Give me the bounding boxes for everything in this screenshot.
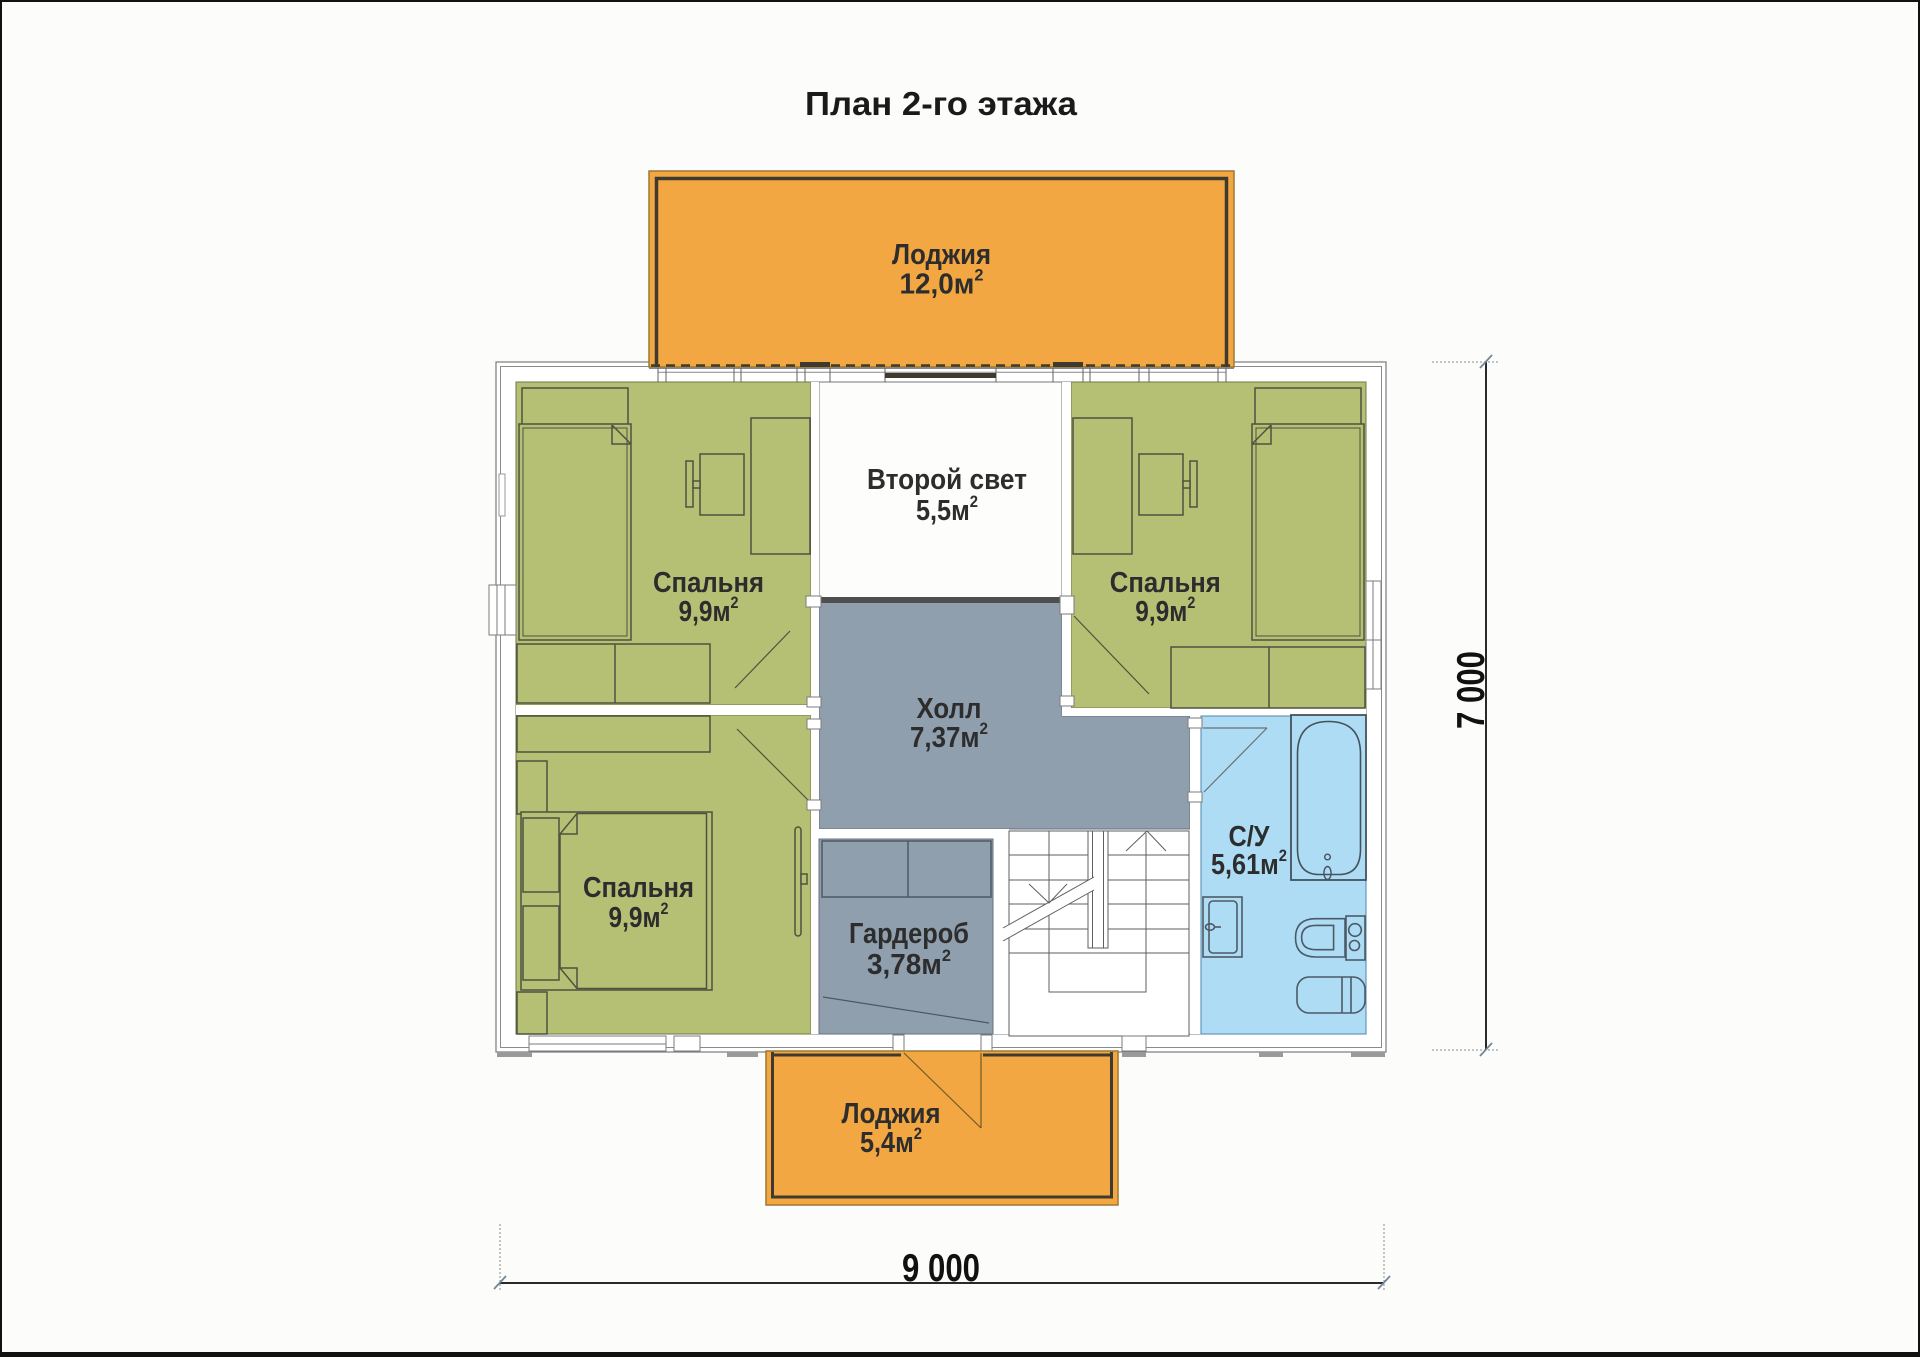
svg-text:9,9м2: 9,9м2 bbox=[609, 899, 669, 934]
svg-text:5,4м2: 5,4м2 bbox=[860, 1124, 922, 1159]
svg-text:Гардероб: Гардероб bbox=[849, 918, 969, 950]
svg-text:12,0м2: 12,0м2 bbox=[900, 266, 984, 301]
svg-text:9,9м2: 9,9м2 bbox=[679, 593, 739, 628]
svg-text:5,61м2: 5,61м2 bbox=[1211, 846, 1287, 881]
svg-text:7,37м2: 7,37м2 bbox=[910, 719, 988, 754]
svg-text:5,5м2: 5,5м2 bbox=[916, 492, 978, 527]
svg-text:9,9м2: 9,9м2 bbox=[1135, 593, 1195, 628]
svg-text:Лоджия: Лоджия bbox=[842, 1098, 941, 1130]
svg-text:Спальня: Спальня bbox=[583, 872, 694, 904]
svg-text:9 000: 9 000 bbox=[902, 1247, 980, 1290]
svg-text:3,78м2: 3,78м2 bbox=[867, 946, 951, 981]
svg-text:7 000: 7 000 bbox=[1450, 651, 1493, 729]
svg-text:План 2-го этажа: План 2-го этажа bbox=[805, 85, 1078, 122]
svg-text:Спальня: Спальня bbox=[653, 567, 764, 599]
svg-text:Второй свет: Второй свет bbox=[867, 464, 1027, 496]
svg-text:Холл: Холл bbox=[917, 693, 982, 725]
svg-text:Спальня: Спальня bbox=[1110, 567, 1221, 599]
